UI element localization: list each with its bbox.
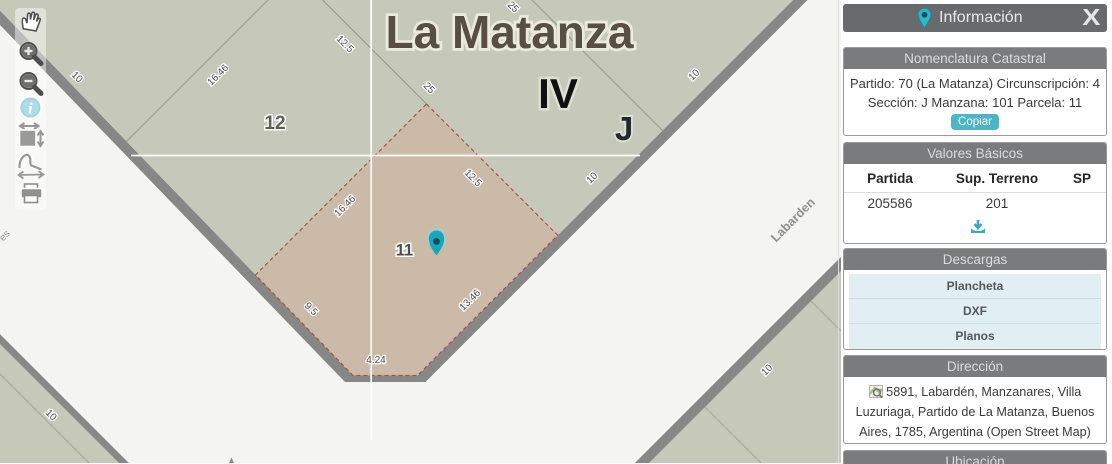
svg-text:J: J	[615, 110, 633, 147]
svg-text:12: 12	[264, 113, 285, 134]
svg-text:IV: IV	[538, 70, 578, 117]
svg-text:11: 11	[396, 242, 413, 260]
svg-text:4.24: 4.24	[366, 355, 386, 366]
svg-text:i: i	[28, 101, 33, 118]
svg-text:La Matanza: La Matanza	[386, 6, 634, 58]
